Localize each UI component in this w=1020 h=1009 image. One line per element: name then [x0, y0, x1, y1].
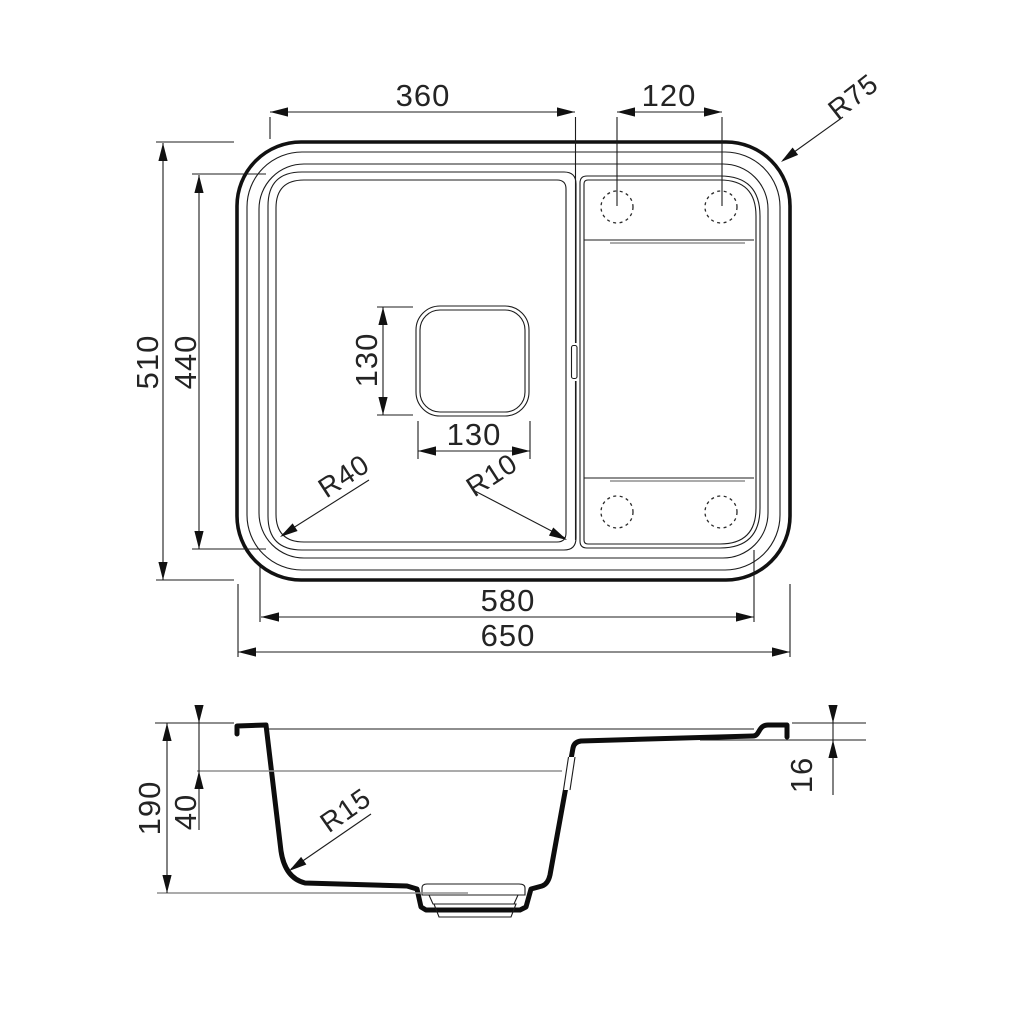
drainboard-outline	[580, 176, 760, 548]
faucet-hole-bottom-left	[601, 496, 633, 528]
dim-upper-depth: 40	[168, 705, 204, 830]
dim-bowl-depth: 440	[168, 174, 266, 549]
overflow-slot-section	[562, 757, 578, 790]
drain-opening	[416, 306, 529, 416]
outer-edge	[237, 142, 790, 580]
bowl-outline	[268, 172, 576, 550]
dim-inner-width-label: 580	[481, 583, 536, 618]
dim-hole-spacing-label: 120	[642, 78, 697, 113]
dim-divider-radius: R10	[461, 447, 570, 544]
top-view: 360 120 R75 510	[130, 68, 884, 657]
dim-divider-radius-label: R10	[461, 447, 523, 503]
dim-drain-horizontal: 130	[418, 417, 530, 459]
drainboard-outer-edge	[580, 176, 760, 548]
technical-drawing-page: 360 120 R75 510	[0, 0, 1020, 1009]
drain-outer	[416, 306, 529, 416]
dim-bottom-radius-label: R15	[314, 782, 376, 839]
dim-bowl-depth-label: 440	[168, 335, 203, 390]
dim-outer-radius: R75	[778, 68, 884, 166]
dim-rim-step-label: 16	[784, 757, 819, 793]
dim-drain-vertical: 130	[349, 307, 413, 415]
dim-section-height-label: 190	[132, 781, 167, 836]
overflow-slot	[569, 343, 579, 381]
bowl-outer-edge	[268, 172, 576, 550]
dim-drain-horizontal-label: 130	[447, 417, 502, 452]
dim-drain-vertical-label: 130	[349, 333, 384, 388]
sink-technical-drawing: 360 120 R75 510	[0, 0, 1020, 1009]
dim-overall-width-label: 650	[481, 618, 536, 653]
dim-bowl-radius: R40	[277, 448, 375, 541]
dim-upper-depth-label: 40	[168, 794, 203, 830]
faucet-hole-top-right	[705, 191, 737, 223]
dim-outer-radius-label: R75	[822, 68, 884, 126]
dim-bowl-width-label: 360	[396, 78, 451, 113]
section-view: 190 40 R15 16	[132, 705, 866, 917]
drainboard-inner-edge	[584, 180, 756, 544]
dim-overall-depth-label: 510	[130, 335, 165, 390]
rim-edge	[247, 152, 780, 570]
sink-outline	[237, 142, 790, 580]
dim-bottom-radius: R15	[286, 782, 376, 875]
faucet-hole-bottom-right	[705, 496, 737, 528]
dim-bowl-width: 360	[270, 78, 576, 540]
dim-rim-step: 16	[700, 705, 866, 795]
drain-inner	[420, 310, 525, 412]
dim-inner-width: 580	[260, 550, 754, 622]
